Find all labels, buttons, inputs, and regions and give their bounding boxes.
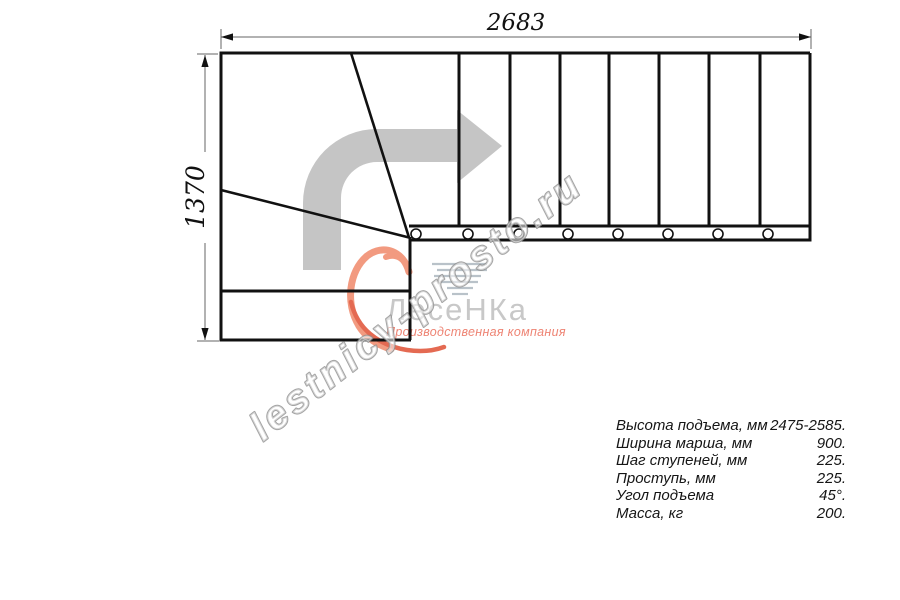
spec-value: 225. xyxy=(817,470,846,488)
spec-label: Шаг ступеней, мм xyxy=(616,452,747,470)
dimension-top: 2683 xyxy=(221,10,811,49)
baluster-circles xyxy=(411,229,773,239)
spec-value: 225. xyxy=(817,452,846,470)
watermark-text: lestnicy-prosto.ru xyxy=(241,162,591,449)
dim-top-label: 2683 xyxy=(486,10,546,36)
dim-left-label: 1370 xyxy=(181,165,210,229)
spec-value: 45°. xyxy=(819,487,846,505)
dim-left-arrow-bottom xyxy=(201,328,208,340)
staircase-drawing-page: ЛесеНКа Производственная компания xyxy=(0,0,900,600)
spec-label: Проступь, мм xyxy=(616,470,716,488)
spec-row-tread: Проступь, мм 225. xyxy=(616,470,846,488)
tread-lines xyxy=(459,53,760,226)
dim-left-arrow-top xyxy=(201,55,208,67)
spec-row-angle: Угол подъема 45°. xyxy=(616,487,846,505)
spec-row-height: Высота подъема, мм 2475-2585. xyxy=(616,417,846,435)
spec-label: Угол подъема xyxy=(616,487,714,505)
dimension-left: 1370 xyxy=(181,54,219,341)
spec-table: Высота подъема, мм 2475-2585. Ширина мар… xyxy=(616,417,846,522)
spec-label: Ширина марша, мм xyxy=(616,435,752,453)
spec-row-mass: Масса, кг 200. xyxy=(616,505,846,523)
spec-label: Высота подъема, мм xyxy=(616,417,768,435)
dim-top-arrow-left xyxy=(221,33,233,40)
spec-value: 2475-2585. xyxy=(770,417,846,435)
spec-row-flight-width: Ширина марша, мм 900. xyxy=(616,435,846,453)
spec-value: 900. xyxy=(817,435,846,453)
dim-top-arrow-right xyxy=(799,33,811,40)
spec-row-step-pitch: Шаг ступеней, мм 225. xyxy=(616,452,846,470)
spec-label: Масса, кг xyxy=(616,505,683,523)
spec-value: 200. xyxy=(817,505,846,523)
